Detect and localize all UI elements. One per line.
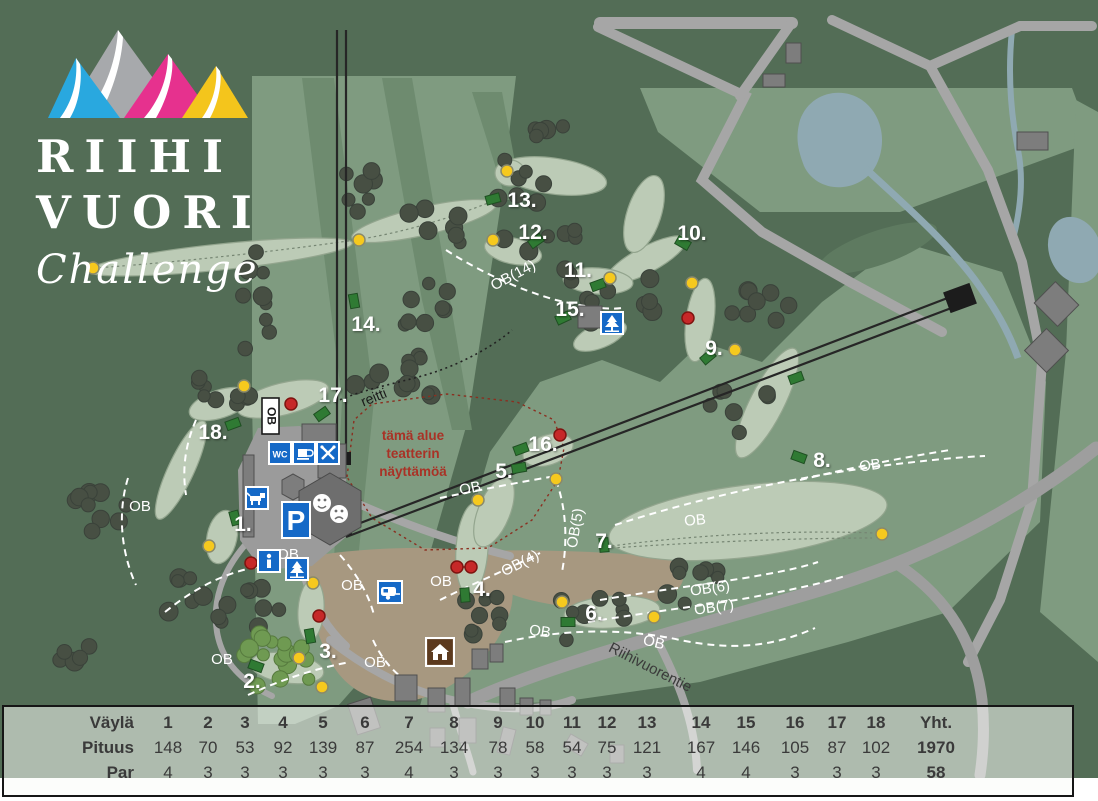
tree-icon	[748, 293, 765, 310]
hole-label: 2.	[243, 670, 261, 693]
hole-length: 75	[598, 738, 617, 758]
tree-icon	[519, 165, 532, 178]
tree-icon	[693, 565, 709, 581]
hole-length: 121	[633, 738, 661, 758]
ob-label: OB	[858, 456, 882, 476]
hole-length: 105	[781, 738, 809, 758]
course-map-page: 1.2.3.4.5.6.7.8.9.10.11.12.13.14.15.16.1…	[0, 0, 1098, 801]
tree-icon	[465, 624, 478, 637]
hole-label: 15.	[555, 298, 584, 321]
tree-icon	[612, 592, 626, 606]
basket-marker	[316, 681, 328, 693]
hole-par: 4	[404, 763, 413, 783]
tree-icon	[342, 193, 355, 206]
hole-label: 3.	[319, 640, 337, 663]
hole-length: 146	[732, 738, 760, 758]
tree-icon	[422, 388, 434, 400]
hole-par: 3	[360, 763, 369, 783]
ob-label: OB	[430, 573, 452, 590]
hole-length: 53	[236, 738, 255, 758]
tree-icon	[536, 176, 552, 192]
tree-icon	[449, 207, 467, 225]
basket-marker	[876, 528, 888, 540]
tree-icon	[493, 617, 506, 630]
tree-icon	[416, 200, 434, 218]
hole-number: 3	[240, 713, 249, 733]
tree-icon	[641, 270, 659, 288]
building	[455, 678, 470, 706]
info-icon	[257, 549, 281, 573]
logo-line1: RIIHI	[36, 129, 266, 185]
ob-label: OB	[341, 577, 363, 594]
ob-label: OB	[129, 498, 151, 515]
hole-number: 14	[692, 713, 711, 733]
tee-pad	[348, 293, 359, 308]
building	[395, 675, 417, 701]
logo-mountains-icon	[36, 26, 261, 124]
basket-marker	[550, 473, 562, 485]
hole-length: 87	[356, 738, 375, 758]
hole-number: 18	[867, 713, 886, 733]
hole-label: 14.	[351, 313, 380, 336]
hole-par: 3	[567, 763, 576, 783]
tree-icon	[439, 284, 455, 300]
tree-icon	[416, 314, 433, 331]
tree-icon	[560, 633, 574, 647]
building	[786, 43, 801, 63]
tree-icon	[84, 523, 100, 539]
hole-par: 3	[203, 763, 212, 783]
cafe-icon	[292, 441, 316, 465]
red-marker	[285, 398, 297, 410]
tree-icon	[725, 306, 740, 321]
tree-icon	[423, 277, 435, 289]
hole-number: 4	[278, 713, 287, 733]
score-table: VäyläPituusPar11484270335334923513936873…	[2, 705, 1074, 797]
hole-label: 6.	[585, 602, 603, 625]
hole-number: 15	[737, 713, 756, 733]
logo-line3: Challenge	[36, 247, 266, 293]
basket-marker	[501, 165, 513, 177]
basket-marker	[487, 234, 499, 246]
tree-icon	[642, 294, 658, 310]
hole-length: 102	[862, 738, 890, 758]
parking-icon: P	[281, 501, 311, 539]
hole-number: 16	[786, 713, 805, 733]
restaurant-icon	[316, 441, 340, 465]
tree-icon	[303, 673, 315, 685]
hole-label: 10.	[677, 222, 706, 245]
hole-label: 16.	[528, 433, 557, 456]
house-icon	[425, 637, 455, 667]
building	[1017, 132, 1048, 150]
tree-icon	[362, 193, 374, 205]
tree-icon	[240, 639, 258, 657]
hole-label: 12.	[518, 221, 547, 244]
hole-length: 54	[563, 738, 582, 758]
hole-label: 1.	[234, 513, 252, 536]
building	[472, 649, 488, 669]
tree-icon	[198, 390, 210, 402]
tree-icon	[732, 425, 746, 439]
svg-text:OB: OB	[264, 407, 278, 425]
tree-icon	[400, 204, 418, 222]
tree-icon	[600, 311, 624, 335]
hole-length: 139	[309, 738, 337, 758]
svg-text:WC: WC	[273, 450, 288, 460]
tree-icon	[110, 513, 127, 530]
row-label-par: Par	[12, 763, 134, 783]
tree-icon	[448, 227, 464, 243]
tee-pad	[561, 618, 575, 627]
hole-par: 3	[832, 763, 841, 783]
red-marker	[465, 561, 477, 573]
tree-icon	[568, 223, 582, 237]
hole-label: 9.	[705, 337, 723, 360]
total-length: 1970	[917, 738, 955, 758]
hole-length: 70	[199, 738, 218, 758]
ob-label: OB	[211, 651, 233, 668]
row-label-length: Pituus	[12, 738, 134, 758]
basket-marker	[203, 540, 215, 552]
red-marker	[451, 561, 463, 573]
tree-icon	[435, 301, 450, 316]
ob-label: OB	[364, 654, 386, 671]
tree-icon	[399, 376, 415, 392]
theater-note: teatterin	[386, 446, 439, 461]
hole-label: 13.	[507, 189, 536, 212]
hole-length: 167	[687, 738, 715, 758]
hole-label: 4.	[473, 578, 491, 601]
tree-icon	[370, 364, 389, 383]
hole-label: 11.	[564, 259, 592, 282]
theater-note: näyttämöä	[379, 464, 447, 479]
tree-icon	[363, 163, 380, 180]
tree-icon	[57, 645, 72, 660]
hole-par: 3	[530, 763, 539, 783]
basket-marker	[604, 272, 616, 284]
basket-marker	[556, 596, 568, 608]
hole-number: 2	[203, 713, 212, 733]
hole-number: 17	[828, 713, 847, 733]
tree-icon	[81, 498, 95, 512]
hole-par: 4	[696, 763, 705, 783]
total-label: Yht.	[920, 713, 952, 733]
hole-length: 87	[828, 738, 847, 758]
tree-icon	[673, 566, 686, 579]
tree-icon	[530, 129, 544, 143]
hole-label: 5.	[495, 460, 513, 483]
basket-marker	[293, 652, 305, 664]
hole-par: 3	[642, 763, 651, 783]
wc-icon: WC	[268, 441, 292, 465]
tree-icon	[260, 313, 273, 326]
tree-icon	[419, 222, 437, 240]
tree-icon	[490, 590, 504, 604]
theater-note: tämä alue	[382, 428, 445, 443]
ob-label: OB	[684, 511, 707, 530]
hole-number: 10	[526, 713, 545, 733]
logo: RIIHI VUORI Challenge	[36, 26, 266, 293]
hole-length: 92	[274, 738, 293, 758]
hole-length: 58	[526, 738, 545, 758]
hole-number: 12	[598, 713, 617, 733]
hole-number: 8	[449, 713, 458, 733]
tree-icon	[759, 386, 776, 403]
red-marker	[245, 557, 257, 569]
tee-pad	[460, 588, 470, 603]
basket-marker	[729, 344, 741, 356]
hole-number: 5	[318, 713, 327, 733]
ob-label: OB	[528, 622, 552, 642]
tree-icon	[211, 609, 226, 624]
basket-marker	[648, 611, 660, 623]
tree-icon	[768, 312, 784, 328]
hole-length: 254	[395, 738, 423, 758]
building	[490, 644, 503, 662]
tree-icon	[566, 606, 578, 618]
basket-marker	[686, 277, 698, 289]
hole-label: 18.	[198, 421, 227, 444]
hole-number: 13	[638, 713, 657, 733]
hole-par: 3	[871, 763, 880, 783]
caravan-icon	[377, 580, 403, 604]
hole-number: 1	[163, 713, 172, 733]
row-label-hole: Väylä	[12, 713, 134, 733]
svg-text:P: P	[287, 505, 306, 536]
tree-icon	[725, 404, 742, 421]
tree-icon	[172, 575, 185, 588]
tree-icon	[781, 297, 797, 313]
ob-sign-icon: OB	[261, 397, 280, 435]
tree-icon	[401, 360, 418, 377]
logo-line2: VUORI	[36, 185, 266, 241]
basket-marker	[353, 234, 365, 246]
tree-icon	[350, 204, 365, 219]
building	[763, 74, 785, 87]
tree-icon	[272, 603, 286, 617]
hole-number: 6	[360, 713, 369, 733]
hole-number: 9	[493, 713, 502, 733]
dog-icon	[245, 486, 269, 510]
tree-icon	[262, 325, 276, 339]
hole-length: 78	[489, 738, 508, 758]
tee-pad	[511, 462, 526, 473]
tree-icon	[255, 600, 272, 617]
tree-icon	[403, 291, 419, 307]
hole-length: 148	[154, 738, 182, 758]
tree-icon	[257, 649, 269, 661]
tree-icon	[184, 572, 197, 585]
hole-par: 3	[240, 763, 249, 783]
red-marker	[313, 610, 325, 622]
hole-par: 3	[602, 763, 611, 783]
hole-number: 7	[404, 713, 413, 733]
tree-icon	[556, 120, 569, 133]
tree-icon	[192, 370, 208, 386]
hole-number: 11	[563, 713, 581, 733]
tree-icon	[401, 314, 417, 330]
tree-icon	[241, 584, 254, 597]
hole-par: 3	[318, 763, 327, 783]
hole-length: 134	[440, 738, 468, 758]
tree-icon	[285, 557, 309, 581]
tee-pad	[304, 628, 315, 643]
tree-icon	[471, 607, 487, 623]
tree-icon	[72, 650, 87, 665]
hole-label: 8.	[813, 449, 831, 472]
tree-icon	[238, 341, 253, 356]
red-marker	[682, 312, 694, 324]
hole-par: 3	[493, 763, 502, 783]
hole-par: 3	[278, 763, 287, 783]
basket-marker	[238, 380, 250, 392]
total-par: 58	[927, 763, 946, 783]
hole-par: 3	[790, 763, 799, 783]
hole-par: 4	[741, 763, 750, 783]
hole-par: 3	[449, 763, 458, 783]
tree-icon	[277, 637, 291, 651]
hole-par: 4	[163, 763, 172, 783]
hole-label: 17.	[318, 384, 347, 407]
hole-label: 7.	[595, 530, 613, 553]
